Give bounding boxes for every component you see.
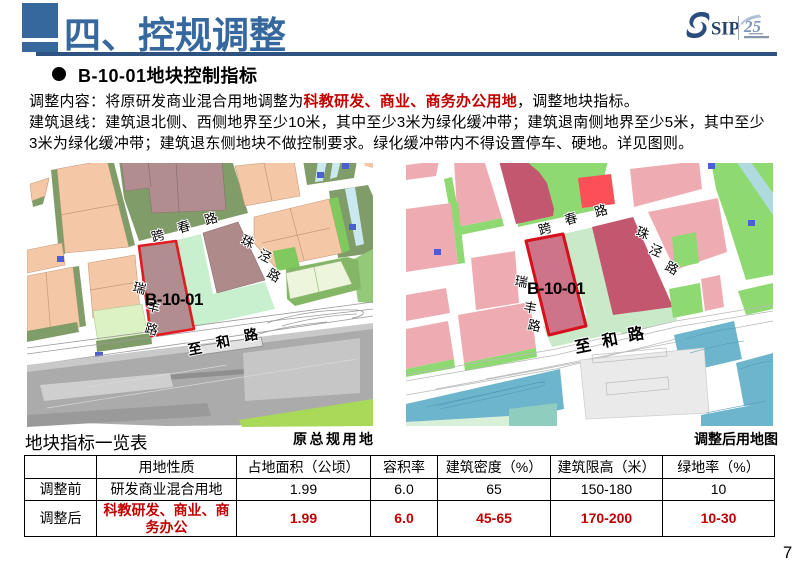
svg-text:至: 至 [573, 336, 592, 357]
svg-text:丰: 丰 [522, 299, 537, 316]
svg-text:路: 路 [526, 317, 541, 334]
svg-text:B-10-01: B-10-01 [527, 279, 585, 298]
svg-text:B-10-01: B-10-01 [145, 290, 203, 309]
svg-text:SIP: SIP [711, 20, 740, 40]
svg-text:和: 和 [215, 333, 232, 351]
svg-text:至: 至 [187, 340, 204, 358]
